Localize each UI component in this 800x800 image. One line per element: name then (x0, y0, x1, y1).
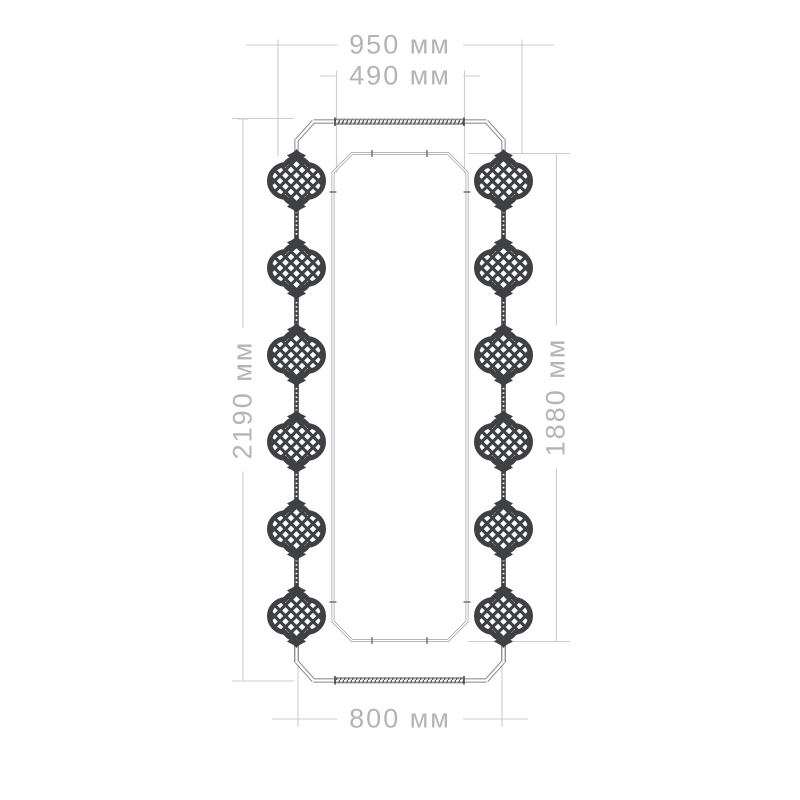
hatched-band (335, 118, 464, 685)
dim-label-top-inner-width: 490 мм (337, 60, 463, 93)
dim-label-left-overall-height: 2190 мм (227, 329, 260, 472)
frame-joint-ticks (330, 150, 471, 644)
dim-label-bottom-width: 800 мм (337, 703, 463, 736)
mirror-outline-drawing (0, 0, 800, 800)
inner-frame (330, 150, 471, 644)
dimension-diagram: 950 мм 490 мм 2190 мм 1880 мм 800 мм (0, 0, 800, 800)
outer-frame (297, 118, 504, 685)
side-chain (297, 160, 504, 662)
dim-label-top-outer-width: 950 мм (337, 29, 463, 62)
dim-label-right-inner-height: 1880 мм (540, 326, 573, 469)
